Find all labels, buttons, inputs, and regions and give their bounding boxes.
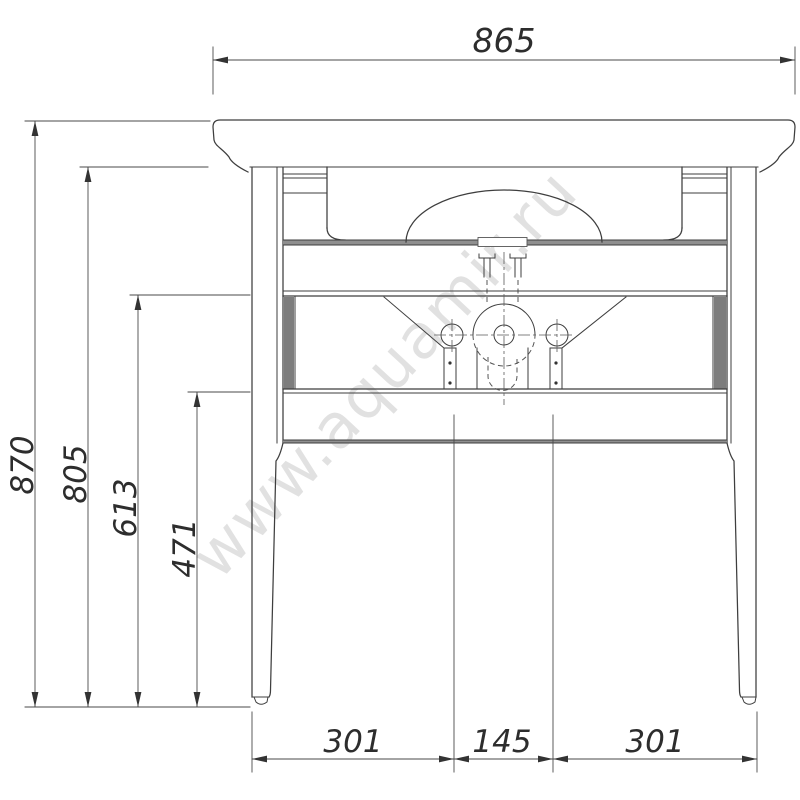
siphon-trap <box>488 357 517 391</box>
dim-label-overall-height: 870 <box>5 435 41 494</box>
dim-label-under-top-height: 805 <box>58 444 94 503</box>
basin-left-corner <box>283 167 345 240</box>
right-foot-cap <box>742 697 756 704</box>
dim-label-bottom-center-span: 145 <box>472 724 531 760</box>
countertop <box>213 120 795 172</box>
dimension-heights-left: 870 805 613 471 <box>5 121 250 707</box>
dimension-top-width: 865 <box>213 21 795 94</box>
dim-label-bottom-right-span: 301 <box>625 724 684 760</box>
right-strap <box>550 348 562 389</box>
lower-rail <box>283 440 727 443</box>
left-foot-cap <box>254 697 268 704</box>
drawing-canvas: www.aquamir.ru www.aquamir.ru <box>0 0 800 800</box>
dim-label-panel-top-height: 613 <box>108 478 144 537</box>
watermark-text: www.aquamir.ru <box>177 154 592 592</box>
dim-label-panel-bottom-height: 471 <box>167 518 203 577</box>
vanity-technical-drawing: www.aquamir.ru www.aquamir.ru <box>0 0 800 800</box>
dim-label-bottom-left-span: 301 <box>323 724 382 760</box>
basin-right-corner <box>664 167 727 240</box>
right-leg <box>727 168 756 704</box>
drain-cover-plate <box>478 238 527 247</box>
watermark: www.aquamir.ru www.aquamir.ru <box>177 153 595 594</box>
basin-shelf <box>283 238 727 247</box>
dim-label-top-width: 865 <box>473 21 536 60</box>
